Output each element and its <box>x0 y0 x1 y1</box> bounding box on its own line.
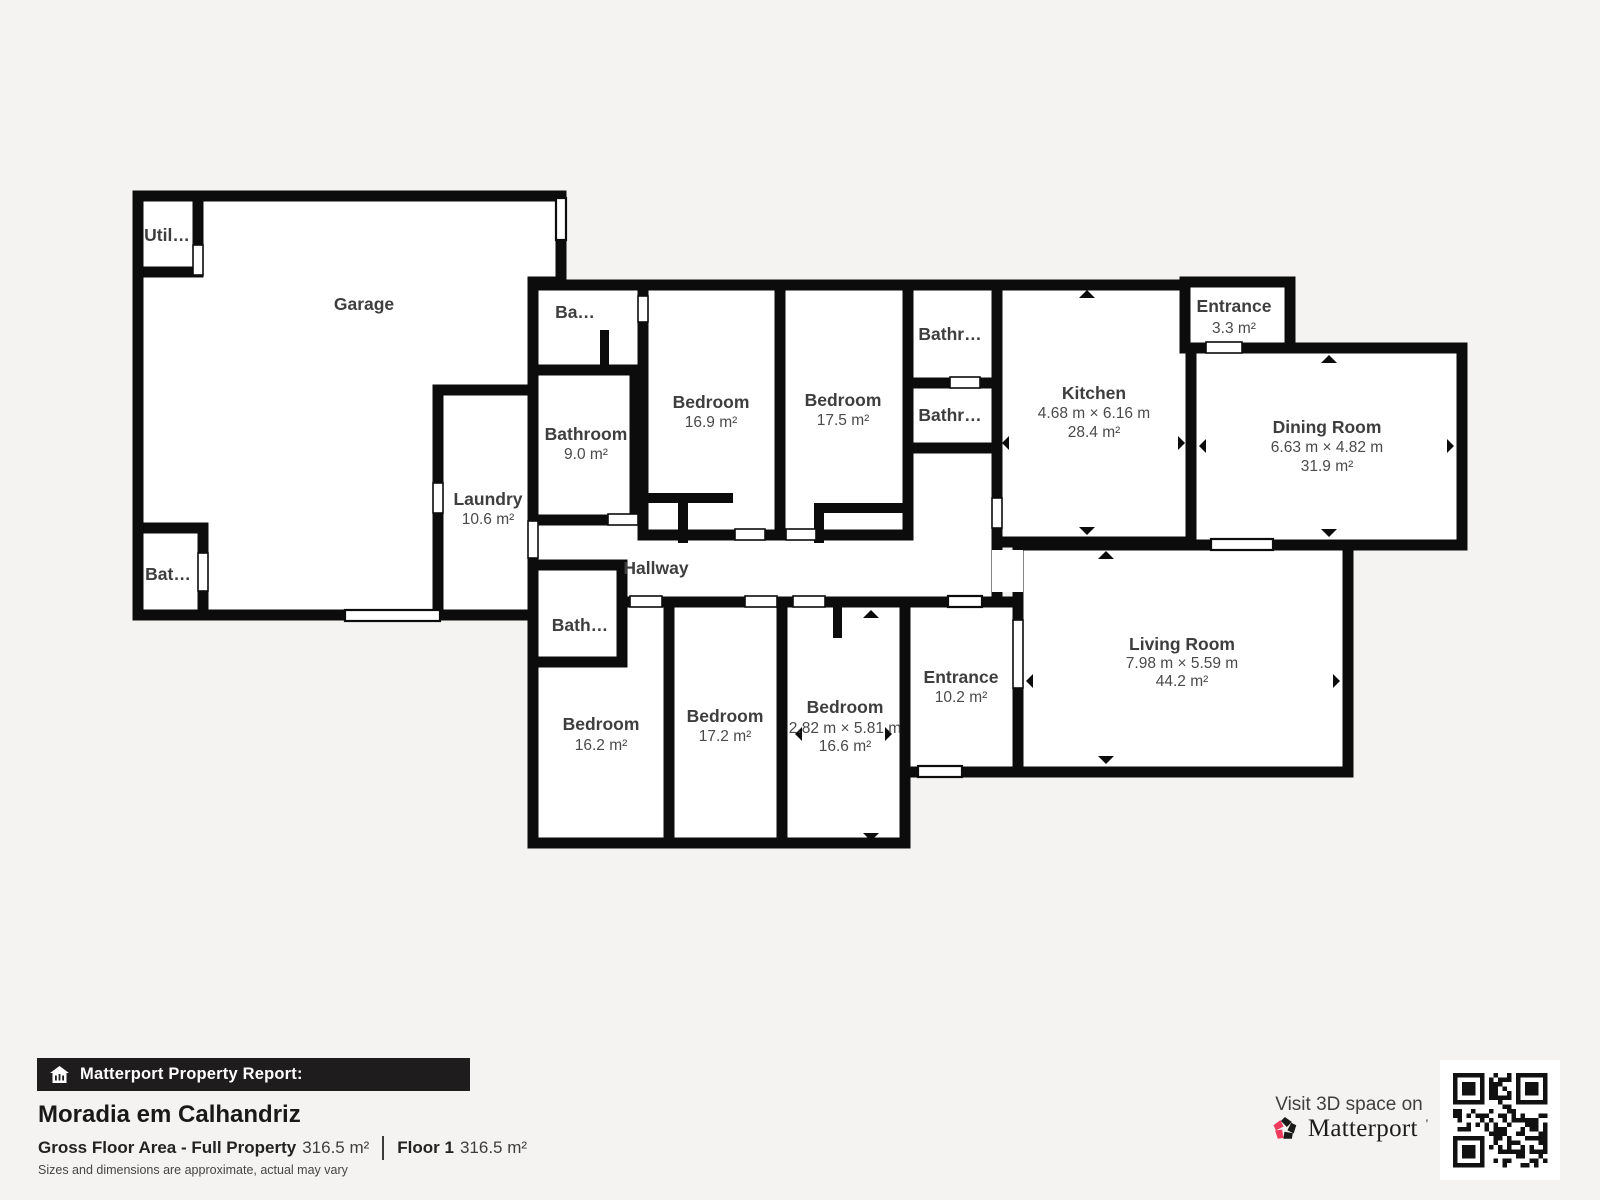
room-label: Hallway <box>623 558 688 578</box>
room-label: Bathr… <box>918 405 981 425</box>
report-header-bar: Matterport Property Report: <box>37 1058 470 1091</box>
window-dining-living <box>1211 539 1273 550</box>
door-bedroom-162 <box>630 596 662 607</box>
room-area: 9.0 m² <box>564 446 608 463</box>
room-label: Ba… <box>555 302 595 322</box>
door-utility <box>193 245 203 275</box>
room-label: Kitchen <box>1062 383 1126 403</box>
window-garage-bottom <box>345 610 440 621</box>
room-label: Bath… <box>552 615 608 635</box>
room-label: Entrance <box>1197 296 1272 316</box>
door-bathroom-top <box>638 296 648 322</box>
door-bedroom-166 <box>793 596 825 607</box>
window-entrance-102-bottom <box>918 766 962 777</box>
room-area: 3.3 m² <box>1212 320 1256 337</box>
room-label: Bedroom <box>807 697 884 717</box>
room-label: Bedroom <box>673 392 750 412</box>
door-bathroom-small <box>950 377 980 388</box>
room-label: Util… <box>144 225 190 245</box>
room-area: 17.2 m² <box>699 728 752 745</box>
room-bedroom-175 <box>780 285 908 535</box>
stub-bedroom-175-a <box>814 503 908 513</box>
room-label: Bedroom <box>805 390 882 410</box>
house-icon <box>50 1066 69 1083</box>
room-label: Bedroom <box>563 714 640 734</box>
room-label: Dining Room <box>1273 417 1382 437</box>
disclaimer-text: Sizes and dimensions are approximate, ac… <box>38 1163 348 1177</box>
room-label: Garage <box>334 294 395 314</box>
room-bathroom-top <box>533 285 643 370</box>
room-bathroom-9 <box>533 370 635 520</box>
room-label: Bathroom <box>545 424 628 444</box>
door-bathroom-9 <box>608 514 638 525</box>
window-garage-right <box>556 198 566 240</box>
door-living-entrance <box>1013 620 1023 688</box>
door-bedroom-172 <box>745 596 777 607</box>
page: Garage Util… Bat… Laundry 10.6 m² Ba… Ba… <box>0 0 1600 1200</box>
room-area: 10.6 m² <box>462 511 515 528</box>
room-entrance-102 <box>905 602 1018 772</box>
divider <box>382 1136 384 1160</box>
room-dims: 7.98 m × 5.59 m <box>1126 655 1238 672</box>
door-laundry <box>433 483 443 513</box>
room-label: Bedroom <box>687 706 764 726</box>
matterport-wordmark: Matterport <box>1308 1115 1418 1143</box>
floor-1-value: 316.5 m² <box>460 1138 527 1158</box>
door-bedroom-169 <box>735 529 765 540</box>
report-header-text: Matterport Property Report: <box>80 1065 303 1084</box>
trademark-mark: ' <box>1426 1116 1428 1132</box>
room-area: 31.9 m² <box>1301 458 1354 475</box>
qr-code <box>1440 1060 1560 1180</box>
door-entrance-33 <box>1206 342 1242 353</box>
matterport-pinwheel-icon <box>1270 1114 1300 1144</box>
property-title: Moradia em Calhandriz <box>38 1101 301 1129</box>
area-summary: Gross Floor Area - Full Property 316.5 m… <box>38 1136 527 1160</box>
room-area: 16.9 m² <box>685 414 738 431</box>
stub-bathroom-top <box>600 330 609 370</box>
stub-bedroom-166 <box>833 602 842 638</box>
room-area: 44.2 m² <box>1156 673 1209 690</box>
door-bathroom-left <box>198 553 208 591</box>
door-kitchen <box>992 498 1002 528</box>
room-label: Entrance <box>924 667 999 687</box>
room-area: 17.5 m² <box>817 412 870 429</box>
room-label: Laundry <box>453 489 522 509</box>
gross-floor-area-value: 316.5 m² <box>302 1138 369 1158</box>
room-area: 28.4 m² <box>1068 424 1121 441</box>
room-label: Bathr… <box>918 324 981 344</box>
room-area: 10.2 m² <box>935 689 988 706</box>
stub-bedroom-169-b <box>678 498 688 543</box>
room-area: 16.2 m² <box>575 737 628 754</box>
room-area: 16.6 m² <box>819 738 872 755</box>
room-label: Bat… <box>145 564 191 584</box>
floorplan: Garage Util… Bat… Laundry 10.6 m² Ba… Ba… <box>0 0 1600 1200</box>
visit-3d-text: Visit 3D space on <box>1275 1094 1423 1116</box>
qr-code-pattern <box>1440 1060 1560 1180</box>
matterport-brand: Matterport ' <box>1270 1114 1428 1144</box>
window-entrance-102-top <box>948 596 982 607</box>
floor-1-label: Floor 1 <box>397 1138 454 1158</box>
door-hallway-west <box>528 521 538 558</box>
room-dims: 6.63 m × 4.82 m <box>1271 439 1383 456</box>
gross-floor-area-label: Gross Floor Area - Full Property <box>38 1138 296 1158</box>
passage-hall-living <box>992 550 1023 592</box>
room-dims: 4.68 m × 6.16 m <box>1038 405 1150 422</box>
room-bathroom-bottom <box>533 565 622 662</box>
room-label: Living Room <box>1129 634 1235 654</box>
room-dims: 2.82 m × 5.81 m <box>789 720 901 737</box>
door-bedroom-175 <box>786 529 816 540</box>
